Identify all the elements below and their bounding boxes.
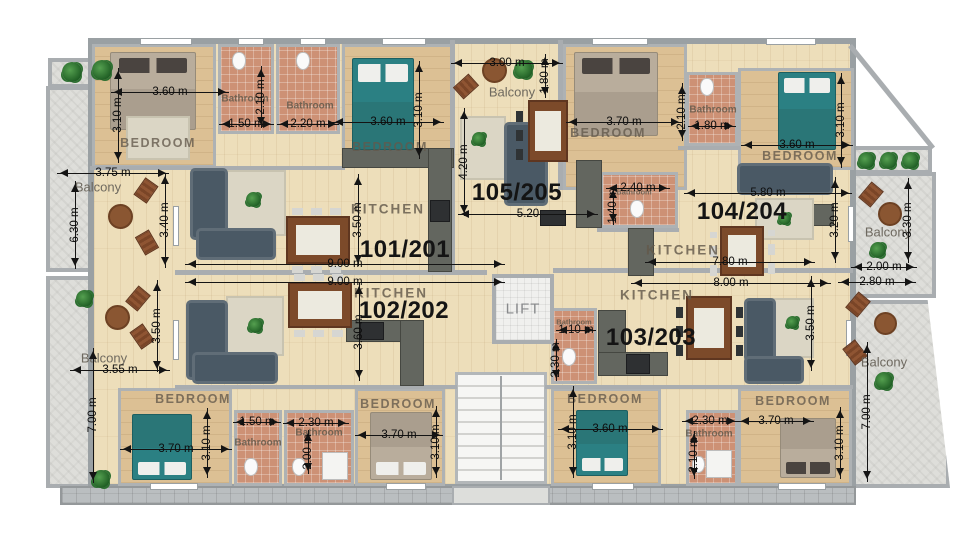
dining-chairs [294,330,348,337]
dining-chairs [292,208,346,215]
dining-chairs [768,230,775,274]
plant [514,60,533,79]
window [386,483,426,490]
balcony-door [173,320,179,360]
plant [858,152,875,169]
window [300,38,326,45]
unit-number-label: 102/202 [359,297,449,325]
bed [780,418,836,478]
plant [62,62,82,82]
dining-chairs [294,274,348,281]
balcony-table [482,58,507,83]
bed [778,72,836,150]
kitchen-counter-102 [400,320,424,386]
plant [870,242,886,258]
kitchen-counter-105 [576,160,602,228]
shower-tray [706,450,732,478]
plant [902,152,919,169]
stove-101 [430,200,450,222]
balcony-table [874,312,897,335]
toilet [692,456,705,473]
wall [545,385,853,389]
balcony-table [105,305,130,330]
entrance-porch [452,486,550,505]
toilet [232,52,246,70]
window [238,38,264,45]
window [778,483,826,490]
plant [880,152,897,169]
bed [574,52,658,136]
sofa [196,228,276,260]
kitchen-unit-104 [628,228,654,276]
toilet [562,348,576,366]
unit-number-label: 105/205 [472,179,562,207]
dining-table-102 [288,282,352,328]
rug [462,118,504,178]
plant [786,316,799,329]
plant [246,192,261,207]
toilet [244,458,258,476]
dining-table-101 [286,216,350,264]
balcony-table [878,202,902,226]
slanted-exterior-wall [848,44,935,150]
stove-103 [626,354,650,374]
window [382,38,426,45]
plant [76,290,93,307]
balcony-door [848,206,854,242]
plant [92,470,110,488]
balcony-door [173,206,179,246]
dining-chairs [736,300,743,356]
bed [132,414,192,480]
bed [352,58,414,150]
window [150,483,198,490]
lift-room [492,274,554,344]
shower-tray [322,452,348,480]
plant [92,60,112,80]
toilet [296,52,310,70]
bathroom-103-center [551,308,597,384]
dining-table-105 [528,100,568,162]
dining-table-104 [720,226,764,276]
window [766,38,816,45]
window [592,38,648,45]
unit-number-label: 101/201 [360,236,450,264]
wall [678,146,740,150]
dining-chairs [516,108,523,160]
sofa [737,163,833,195]
bathroom-101-a [218,44,274,134]
toilet [700,78,714,96]
unit-number-label: 104/204 [697,198,787,226]
balcony-table [108,204,133,229]
plant [248,318,263,333]
dining-chairs [292,266,346,273]
plant [875,372,893,390]
bed [370,412,432,480]
wall [553,268,853,273]
dining-chairs [710,232,717,276]
bathroom-102-a [234,410,282,486]
unit-number-label: 103/203 [606,324,696,352]
bedroom-rug [128,118,188,158]
sofa [744,356,804,384]
toilet [630,200,644,218]
floor-plan: 3.60 m3.10 m1.50 m2.20 m2.10 m3.75 m6.30… [0,0,961,547]
sofa [744,298,776,362]
toilet [292,458,306,476]
plant [472,132,486,146]
bed [576,410,628,476]
window [140,38,192,45]
window [592,483,634,490]
sofa [192,352,278,384]
staircase-divider [500,376,502,480]
stove-105 [540,210,566,226]
